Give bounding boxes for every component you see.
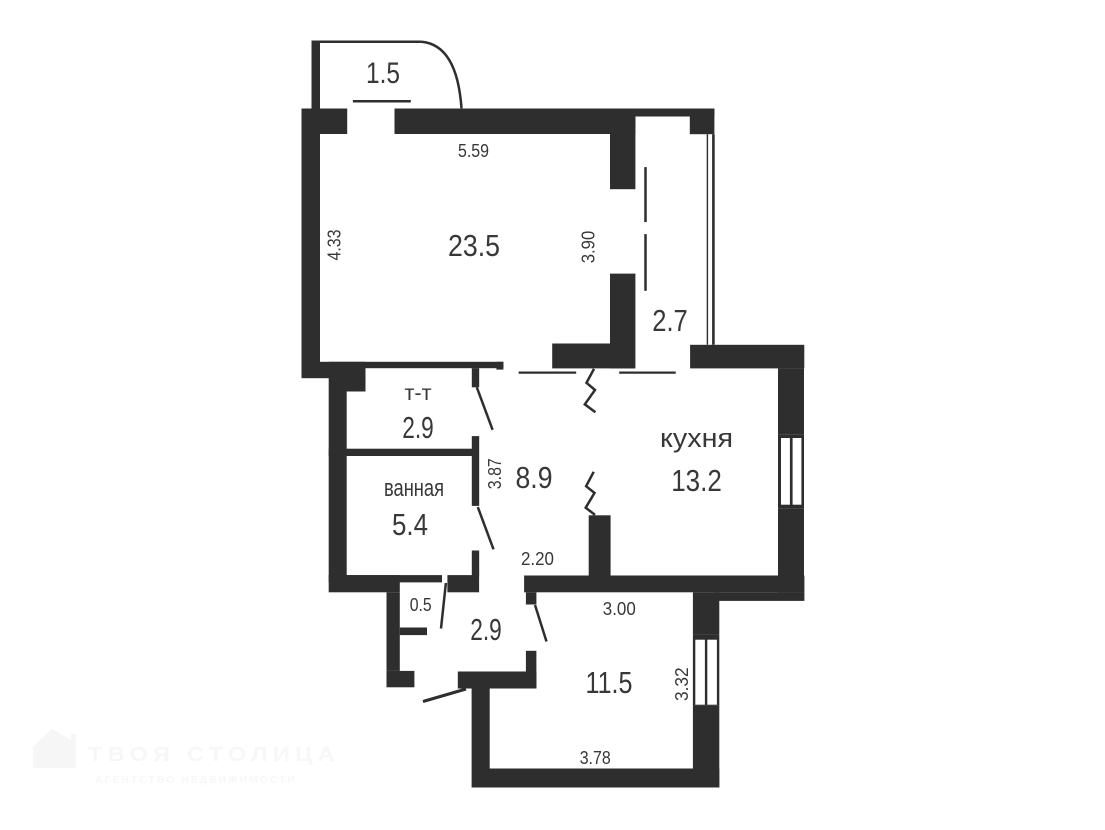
svg-text:т-т: т-т <box>405 382 432 405</box>
svg-text:2.7: 2.7 <box>652 303 688 338</box>
svg-text:3.87: 3.87 <box>485 458 505 489</box>
svg-text:2.9: 2.9 <box>470 612 502 647</box>
svg-text:11.5: 11.5 <box>586 665 633 700</box>
svg-text:3.90: 3.90 <box>579 231 599 264</box>
svg-text:2.9: 2.9 <box>402 410 434 445</box>
svg-text:АГЕНТСТВО НЕДВИЖИМОСТИ: АГЕНТСТВО НЕДВИЖИМОСТИ <box>95 774 297 786</box>
svg-text:8.9: 8.9 <box>516 460 553 495</box>
svg-text:кухня: кухня <box>660 423 733 453</box>
svg-text:3.78: 3.78 <box>580 748 611 768</box>
svg-text:ванная: ванная <box>384 475 444 502</box>
svg-text:23.5: 23.5 <box>448 228 500 263</box>
svg-text:0.5: 0.5 <box>410 595 432 615</box>
svg-text:ТВОЯ СТОЛИЦА: ТВОЯ СТОЛИЦА <box>88 744 340 766</box>
svg-text:2.20: 2.20 <box>521 549 554 569</box>
svg-text:5.59: 5.59 <box>458 141 489 161</box>
svg-text:5.4: 5.4 <box>392 507 428 542</box>
svg-text:4.33: 4.33 <box>325 230 345 261</box>
svg-text:13.2: 13.2 <box>671 463 722 498</box>
svg-text:3.00: 3.00 <box>603 599 636 619</box>
svg-text:3.32: 3.32 <box>672 667 692 701</box>
svg-text:1.5: 1.5 <box>366 57 400 90</box>
